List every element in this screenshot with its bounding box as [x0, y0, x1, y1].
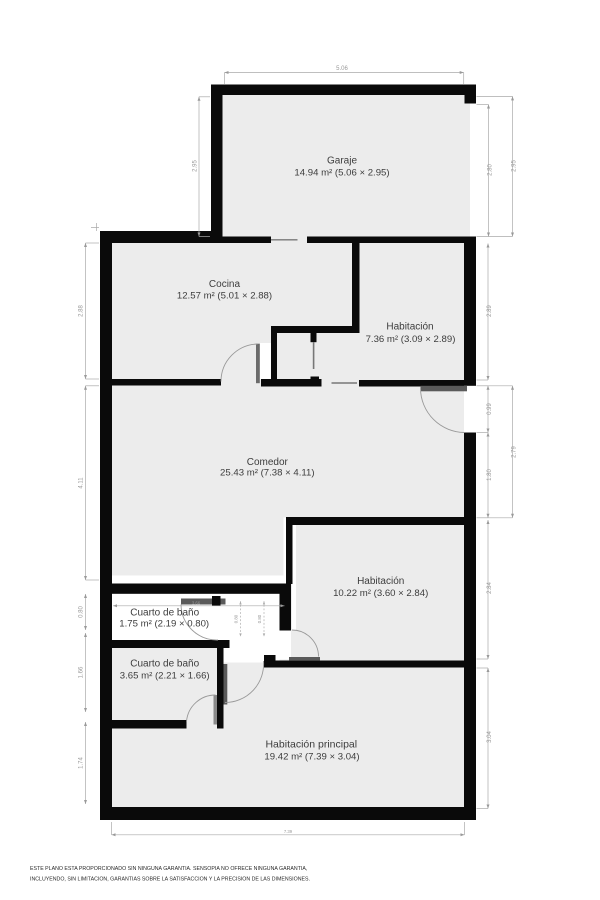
svg-text:7.36 m² (3.09 × 2.89): 7.36 m² (3.09 × 2.89) [366, 334, 456, 345]
svg-text:Cocina: Cocina [209, 279, 241, 290]
svg-text:Cuarto de baño: Cuarto de baño [130, 659, 199, 670]
svg-text:3.04: 3.04 [487, 731, 493, 743]
svg-text:Cuarto de baño: Cuarto de baño [130, 608, 199, 619]
svg-text:ESTE PLANO ESTA PROPORCIONADO: ESTE PLANO ESTA PROPORCIONADO SIN NINGUN… [30, 866, 307, 872]
svg-text:2.79: 2.79 [512, 446, 518, 458]
svg-text:10.22 m² (3.60 × 2.84): 10.22 m² (3.60 × 2.84) [333, 588, 428, 599]
svg-text:Habitación: Habitación [357, 576, 404, 587]
svg-text:2.88: 2.88 [79, 305, 85, 317]
svg-text:0.80: 0.80 [257, 614, 262, 623]
svg-text:Habitación: Habitación [386, 322, 433, 333]
svg-text:1.66: 1.66 [79, 666, 85, 678]
svg-text:Comedor: Comedor [247, 457, 289, 468]
svg-text:19.42 m² (7.39 × 3.04): 19.42 m² (7.39 × 3.04) [264, 751, 359, 762]
svg-text:2.84: 2.84 [487, 582, 493, 594]
svg-text:1.80: 1.80 [487, 469, 493, 481]
svg-text:0.99: 0.99 [487, 403, 493, 415]
svg-text:14.94 m² (5.06 × 2.95): 14.94 m² (5.06 × 2.95) [294, 168, 389, 179]
svg-text:0.80: 0.80 [79, 606, 85, 618]
svg-text:Garaje: Garaje [327, 156, 357, 167]
svg-text:2.95: 2.95 [512, 160, 518, 172]
svg-text:3.66: 3.66 [192, 601, 201, 606]
svg-text:5.06: 5.06 [336, 66, 348, 72]
svg-text:0.80: 0.80 [234, 614, 239, 623]
svg-text:1.75 m² (2.19 × 0.80): 1.75 m² (2.19 × 0.80) [119, 619, 209, 630]
svg-text:INCLUYENDO, SIN LIMITACION, GA: INCLUYENDO, SIN LIMITACION, GARANTIAS SO… [30, 877, 310, 883]
svg-text:2.80: 2.80 [488, 164, 494, 176]
svg-text:7.39: 7.39 [284, 829, 293, 834]
svg-text:3.65 m² (2.21 × 1.66): 3.65 m² (2.21 × 1.66) [120, 670, 210, 681]
svg-text:Habitación principal: Habitación principal [265, 738, 357, 750]
svg-text:2.95: 2.95 [193, 160, 199, 172]
svg-text:25.43 m² (7.38 × 4.11): 25.43 m² (7.38 × 4.11) [220, 468, 314, 479]
svg-text:12.57 m² (5.01 × 2.88): 12.57 m² (5.01 × 2.88) [177, 291, 272, 302]
svg-text:1.74: 1.74 [79, 757, 85, 769]
svg-text:4.11: 4.11 [79, 477, 85, 489]
svg-text:2.89: 2.89 [487, 305, 493, 317]
